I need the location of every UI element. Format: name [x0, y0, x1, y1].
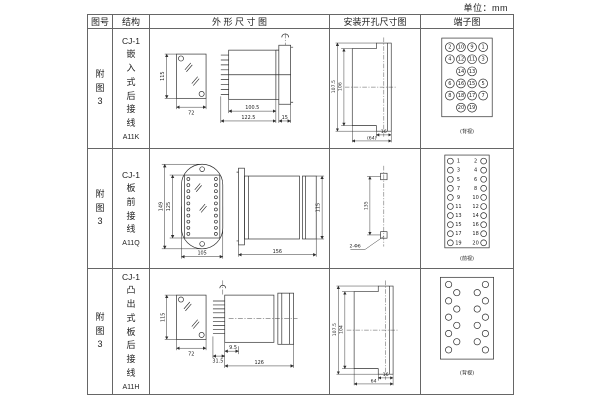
side-view: 156 115	[237, 168, 325, 257]
terminal-holes-a11k: 2109141211314136161558181772019	[445, 43, 487, 112]
svg-text:2: 2	[448, 45, 451, 51]
svg-text:14: 14	[472, 213, 478, 219]
header-terminal: 端子图	[421, 15, 514, 29]
mount-diagram-a11k: 107.5 106 16 (64)	[330, 29, 420, 148]
svg-text:9: 9	[457, 195, 460, 201]
svg-text:11: 11	[455, 204, 461, 210]
cell-terminal-3: (背视)	[421, 269, 514, 395]
svg-text:12: 12	[472, 204, 478, 210]
terminal-diagram-a11q: 1357911131517192468101214161820 (前视)	[421, 149, 513, 268]
dim-label: 149	[158, 202, 164, 211]
svg-text:17: 17	[455, 231, 461, 237]
cell-mount-2: 135 2-Φ6	[330, 149, 421, 269]
cell-structure-2: CJ-1 板前接线 A11Q	[113, 149, 150, 269]
dim-label: 125	[166, 202, 172, 211]
svg-text:4: 4	[474, 168, 477, 174]
dim-label: 16	[383, 372, 389, 378]
cell-outline-1: 115 72 100.5	[150, 29, 330, 149]
svg-text:16: 16	[472, 222, 478, 228]
structure-desc: 嵌入式后接线	[127, 48, 136, 132]
svg-text:4: 4	[448, 57, 451, 63]
view-label: (背视)	[460, 369, 474, 376]
type-code: A11K	[123, 134, 140, 141]
dim-label: 107.5	[332, 323, 338, 336]
dim-label: 126	[254, 360, 263, 366]
svg-text:7: 7	[482, 93, 485, 99]
dim-label: 122.5	[241, 115, 255, 121]
front-view: 149 125 105	[158, 164, 222, 258]
mount-diagram-a11h: 107.5 104 16 64	[330, 269, 420, 394]
outline-diagram-a11h: 115 72 31.5	[150, 269, 329, 394]
svg-text:3: 3	[457, 168, 460, 174]
dim-label: 107.5	[331, 80, 337, 93]
dim-label: 64	[371, 378, 377, 384]
hole-spec-label: 2-Φ6	[349, 243, 360, 249]
dim-label: 106	[338, 82, 344, 91]
model-label: CJ-1	[122, 170, 140, 180]
cell-figure-1: 附图3	[88, 29, 113, 149]
dim-label: 115	[160, 313, 166, 322]
svg-text:1: 1	[457, 159, 460, 165]
model-label: CJ-1	[122, 36, 140, 46]
svg-text:5: 5	[482, 81, 485, 87]
svg-text:6: 6	[474, 177, 477, 183]
cell-outline-2: 149 125 105	[150, 149, 330, 269]
cell-mount-3: 107.5 104 16 64	[330, 269, 421, 395]
cell-figure-3: 附图3	[88, 269, 113, 395]
cell-structure-1: CJ-1 嵌入式后接线 A11K	[113, 29, 150, 149]
header-row: 图号 结构 外 形 尺 寸 图 安装开孔尺寸图 端子图	[88, 15, 514, 29]
svg-text:13: 13	[455, 213, 461, 219]
dim-label: 72	[188, 352, 194, 358]
table-row: 附图3 CJ-1 板前接线 A11Q	[88, 149, 514, 269]
dim-label: 115	[316, 203, 322, 212]
dim-label: 31.5	[212, 358, 223, 364]
svg-text:8: 8	[474, 186, 477, 192]
dim-label: 15	[282, 115, 288, 121]
cell-figure-2: 附图3	[88, 149, 113, 269]
outline-diagram-a11q: 149 125 105	[150, 149, 329, 268]
front-view: 115 72	[160, 295, 206, 357]
type-code: A11H	[123, 384, 140, 391]
front-view: 115 72	[160, 54, 206, 116]
figure-label: 附图3	[96, 188, 105, 230]
dim-label: 72	[188, 111, 194, 117]
dim-label: 115	[160, 72, 166, 81]
terminal-diagram-a11h: (背视)	[421, 269, 513, 394]
svg-text:2: 2	[474, 159, 477, 165]
svg-text:10: 10	[472, 195, 478, 201]
dim-label: 16	[381, 129, 387, 135]
terminal-diagram-a11k: 2109141211314136161558181772019 (背视)	[421, 29, 513, 148]
svg-text:10: 10	[458, 45, 464, 51]
svg-text:8: 8	[448, 93, 451, 99]
header-outline: 外 形 尺 寸 图	[150, 15, 330, 29]
svg-text:5: 5	[457, 177, 460, 183]
svg-text:15: 15	[455, 222, 461, 228]
structure-desc: 凸出式板后接线	[127, 284, 136, 382]
figure-label: 附图3	[96, 68, 105, 110]
front-terminal-dots	[187, 178, 217, 236]
header-mounting: 安装开孔尺寸图	[330, 15, 421, 29]
dim-label: 156	[273, 249, 282, 255]
side-view: 31.5 9.5 126	[212, 280, 297, 368]
svg-text:20: 20	[458, 105, 464, 111]
svg-text:18: 18	[472, 231, 478, 237]
structure-desc: 板前接线	[127, 182, 136, 238]
model-label: CJ-1	[122, 272, 140, 282]
svg-text:3: 3	[482, 57, 485, 63]
svg-text:18: 18	[458, 93, 464, 99]
svg-text:7: 7	[457, 186, 460, 192]
cell-structure-3: CJ-1 凸出式板后接线 A11H	[113, 269, 150, 395]
side-view: 100.5 122.5 15	[221, 33, 293, 123]
svg-text:12: 12	[458, 57, 464, 63]
svg-text:11: 11	[469, 57, 475, 63]
cell-mount-1: 107.5 106 16 (64)	[330, 29, 421, 149]
dim-label: 9.5	[229, 345, 237, 351]
dim-label: 104	[339, 325, 345, 334]
manual-page: 单位：mm 图号 结构 外 形 尺 寸 图 安装开孔尺寸图 端子图 附图3 CJ…	[0, 0, 600, 400]
svg-text:20: 20	[472, 240, 478, 246]
header-structure: 结构	[113, 15, 150, 29]
table-row: 附图3 CJ-1 凸出式板后接线 A11H 115	[88, 269, 514, 395]
dim-label: 105	[197, 251, 206, 257]
svg-text:9: 9	[470, 45, 473, 51]
svg-text:19: 19	[469, 105, 475, 111]
svg-text:16: 16	[458, 81, 464, 87]
cell-outline-3: 115 72 31.5	[150, 269, 330, 395]
svg-text:17: 17	[469, 93, 475, 99]
svg-text:19: 19	[455, 240, 461, 246]
header-figure: 图号	[88, 15, 113, 29]
outline-diagram-a11k: 115 72 100.5	[150, 29, 329, 148]
svg-text:13: 13	[469, 69, 475, 75]
type-code: A11Q	[122, 240, 139, 247]
cell-terminal-2: 1357911131517192468101214161820 (前视)	[421, 149, 514, 269]
view-label: (前视)	[460, 255, 474, 262]
terminal-holes-a11h	[445, 281, 488, 353]
svg-text:15: 15	[469, 81, 475, 87]
svg-text:14: 14	[458, 69, 464, 75]
cell-terminal-1: 2109141211314136161558181772019 (背视)	[421, 29, 514, 149]
mount-diagram-a11q: 135 2-Φ6	[330, 149, 420, 268]
spec-table: 图号 结构 外 形 尺 寸 图 安装开孔尺寸图 端子图 附图3 CJ-1 嵌入式…	[87, 14, 514, 395]
dim-label: (64)	[367, 135, 377, 141]
table-row: 附图3 CJ-1 嵌入式后接线 A11K 115	[88, 29, 514, 149]
terminal-holes-a11q: 1357911131517192468101214161820	[447, 158, 486, 246]
view-label: (背视)	[460, 128, 474, 135]
svg-text:1: 1	[482, 45, 485, 51]
figure-label: 附图3	[96, 311, 105, 353]
svg-text:6: 6	[448, 81, 451, 87]
dim-label: 135	[364, 201, 370, 210]
unit-label: 单位：mm	[464, 1, 509, 14]
dim-label: 100.5	[245, 105, 259, 111]
